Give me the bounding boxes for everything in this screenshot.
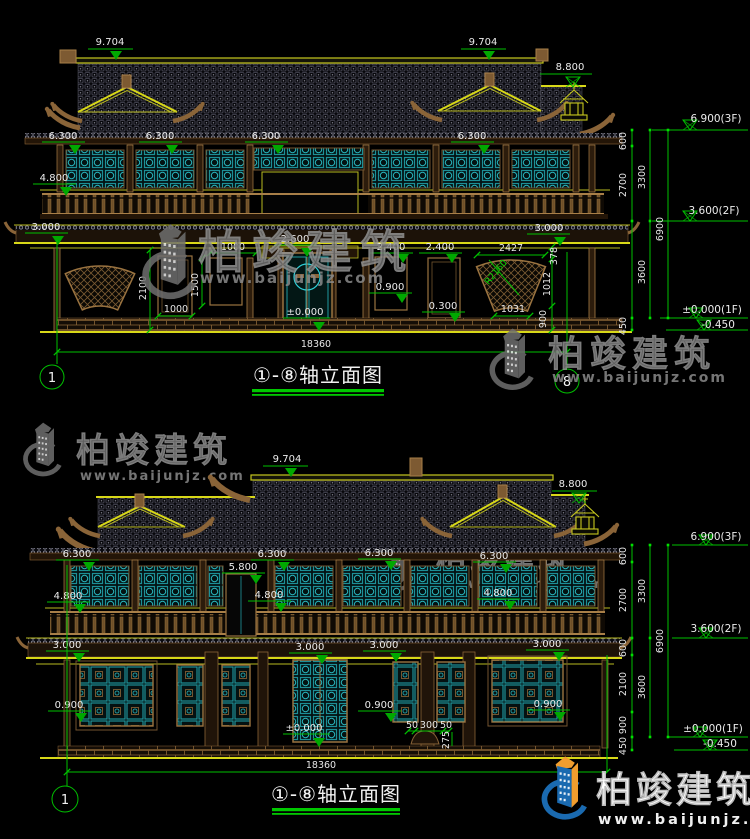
watermark-brand: 柏竣建筑 [548,334,716,375]
title-underline [252,389,384,392]
ridge-finial [410,458,422,476]
cad-canvas: 9.704 9.704 8.800 6.300 6.300 6.300 6.30… [0,0,750,839]
axis-number: 1 [61,793,69,808]
level-label: 8.800 [556,62,585,73]
eave-tile-ends [25,133,622,138]
brand-url: www.baijunjz.com [598,812,750,828]
level-label: 6.300 [365,548,394,559]
chain-dim: 3300 [637,165,648,189]
floor-level-label: 3.600(2F) [689,205,740,217]
level-label: 2.400 [426,242,455,253]
chain-dim: 600 [618,639,629,657]
main-ridge [251,475,553,480]
chain-dim: 3600 [637,675,648,699]
drawing-title: ①-⑧轴立面图 [271,782,401,806]
main-ridge [76,58,543,63]
watermark-url: www.baijunjz.com [80,469,245,484]
watermark-url: www.baijunjz.com [200,269,385,287]
floor-level-label: 6.900(3F) [691,531,742,543]
elevation-drawing-sheet: 9.704 9.704 8.800 6.300 6.300 6.300 6.30… [0,0,750,839]
dim-label: 2427 [499,243,523,254]
chain-dim: 600 [618,132,629,150]
level-label: 6.300 [49,131,78,142]
level-label: 0.900 [55,700,84,711]
level-label: ±0.000 [286,307,323,318]
level-label: 9.704 [96,37,125,48]
chain-dim: 2700 [618,173,629,197]
floor-level-label: ±0.000(1F) [682,304,742,316]
level-label: 3.000 [370,640,399,651]
chain-dim: 900 [618,716,629,734]
level-label: 4.800 [255,590,284,601]
dim-label: 378 [549,247,560,265]
chain-dim: 600 [618,547,629,565]
dim-label: 1031 [501,304,525,315]
dim-label: 1000 [164,304,188,315]
level-label: 4.800 [54,591,83,602]
chain-dim: 3600 [637,260,648,284]
level-label: 4.800 [40,173,69,184]
level-label: 5.800 [229,562,258,573]
level-label: 3.000 [32,222,61,233]
level-label: 0.900 [365,700,394,711]
watermark-url: www.baijunjz.com [552,370,727,386]
top-roof [25,49,622,144]
title-underline [272,808,400,811]
watermark-brand: 柏竣建筑 [76,431,232,471]
level-label: 0.300 [429,301,458,312]
balcony-railing [50,612,605,634]
chain-dim: 2700 [618,588,629,612]
floor-level-label: -0.450 [701,319,735,331]
floor-level-label: ±0.000(1F) [683,723,743,735]
chain-dim: 2100 [618,672,629,696]
floor-level-label: 3.600(2F) [691,623,742,635]
drawing-title: ①-⑧轴立面图 [253,363,383,387]
dim-label: 300 [420,720,438,731]
level-label: 3.000 [533,639,562,650]
level-label: 0.900 [534,699,563,710]
level-label: 6.300 [146,131,175,142]
level-label: 6.300 [258,549,287,560]
eave-tile-ends [30,548,620,553]
overall-dim: 18360 [306,760,336,771]
level-label: 9.704 [273,454,302,465]
chain-dim: 6900 [655,629,666,653]
brick-base [58,746,600,758]
floor-level-label: -0.450 [703,738,737,750]
dim-label: 275 [441,731,452,749]
level-label: 6.300 [63,549,92,560]
overall-dim: 18360 [301,339,331,350]
ridge-finial-left [60,50,76,63]
level-label: 6.300 [480,551,509,562]
chain-dim: 3300 [637,579,648,603]
chain-dim: 6900 [655,217,666,241]
dim-label: 50 [406,720,418,731]
brand-name: 柏竣建筑 [596,770,750,811]
chain-dim: 450 [618,317,629,335]
level-label: 4.800 [484,588,513,599]
level-label: 6.300 [458,131,487,142]
level-label: 3.000 [296,642,325,653]
level-label: 6.300 [252,131,281,142]
level-label: 3.000 [535,223,564,234]
floor-level-label: 6.900(3F) [691,113,742,125]
level-label: ±0.000 [285,723,322,734]
dim-label: 1012 [542,272,553,296]
lattice-windows-2f [71,566,595,606]
chain-dim: 450 [618,737,629,755]
dim-label: 50 [440,720,452,731]
level-label: 9.704 [469,37,498,48]
dim-label: 900 [538,310,549,328]
ridge-finial-right [536,49,548,61]
level-label: 8.800 [559,479,588,490]
axis-number: 1 [48,371,56,386]
